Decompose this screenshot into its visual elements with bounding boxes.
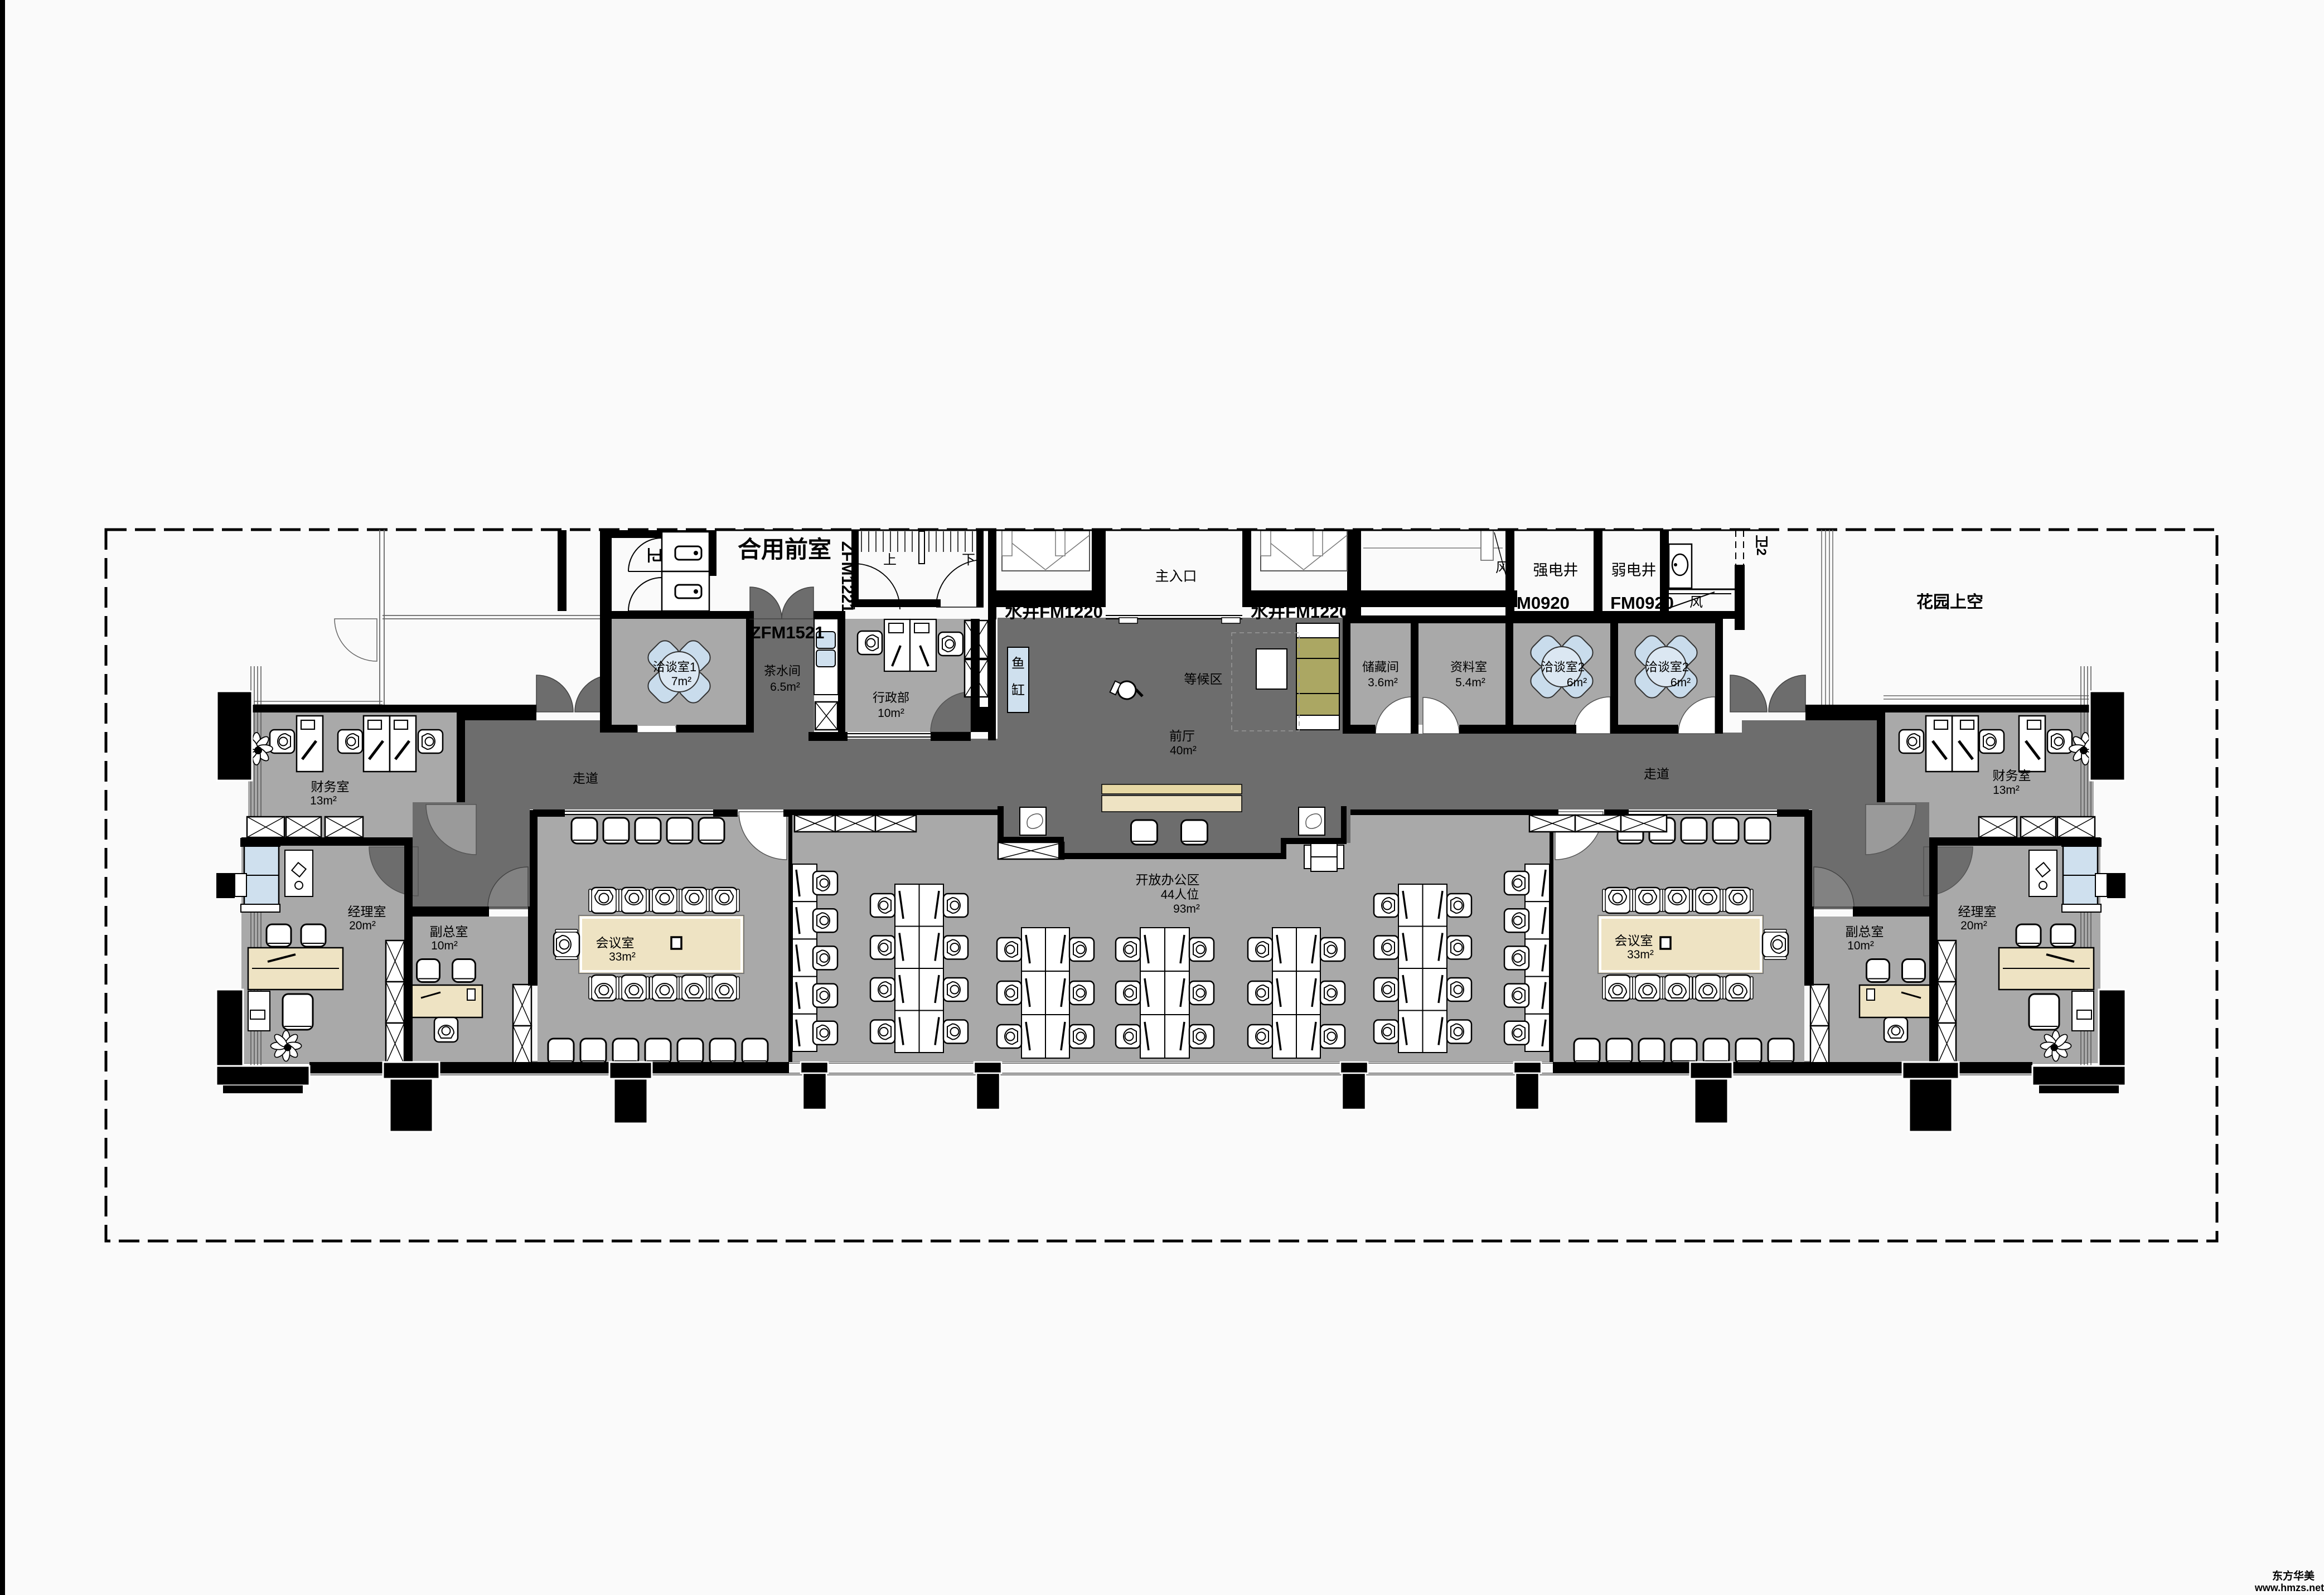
svg-text:风: 风 — [1689, 595, 1703, 610]
svg-text:FM0920: FM0920 — [1506, 593, 1570, 613]
svg-text:3.6m²: 3.6m² — [1368, 676, 1398, 689]
svg-text:洽谈室2: 洽谈室2 — [1541, 660, 1585, 674]
svg-text:前厅: 前厅 — [1169, 729, 1195, 743]
svg-text:20m²: 20m² — [1960, 919, 1987, 932]
svg-text:主入口: 主入口 — [1155, 569, 1197, 584]
svg-text:水井FM1220: 水井FM1220 — [1251, 602, 1349, 622]
svg-text:7m²: 7m² — [671, 675, 691, 688]
svg-text:ZFM1221: ZFM1221 — [838, 541, 856, 613]
svg-text:缸: 缸 — [1011, 683, 1025, 698]
svg-text:40m²: 40m² — [1170, 744, 1197, 757]
svg-text:财务室: 财务室 — [1993, 768, 2031, 783]
svg-text:副总室: 副总室 — [430, 924, 468, 939]
svg-text:鱼: 鱼 — [1011, 656, 1025, 671]
svg-text:合用前室: 合用前室 — [738, 536, 831, 563]
svg-text:资料室: 资料室 — [1450, 660, 1487, 674]
svg-text:13m²: 13m² — [1993, 784, 2020, 797]
svg-text:下: 下 — [962, 552, 975, 568]
svg-text:卫: 卫 — [646, 547, 663, 563]
svg-text:93m²: 93m² — [1173, 903, 1200, 915]
svg-text:44人位: 44人位 — [1161, 888, 1199, 901]
svg-text:6.5m²: 6.5m² — [770, 681, 800, 694]
svg-text:经理室: 经理室 — [1958, 904, 1997, 919]
svg-text:开放办公区: 开放办公区 — [1136, 872, 1200, 887]
svg-text:13m²: 13m² — [310, 794, 337, 807]
svg-text:弱电井: 弱电井 — [1611, 562, 1657, 579]
svg-text:20m²: 20m² — [349, 919, 376, 932]
svg-text:10m²: 10m² — [878, 707, 904, 720]
svg-text:储藏间: 储藏间 — [1362, 660, 1399, 674]
svg-text:会议室: 会议室 — [1615, 933, 1653, 948]
svg-text:风: 风 — [1495, 560, 1509, 575]
svg-text:东方华美: 东方华美 — [2272, 1569, 2315, 1582]
svg-text:行政部: 行政部 — [873, 691, 909, 705]
svg-text:ZFM1521: ZFM1521 — [751, 623, 825, 642]
svg-text:上: 上 — [883, 552, 897, 568]
svg-text:www.hmzs.net: www.hmzs.net — [2254, 1582, 2324, 1593]
svg-text:财务室: 财务室 — [311, 779, 350, 794]
svg-text:10m²: 10m² — [431, 939, 458, 952]
svg-text:33m²: 33m² — [1627, 948, 1654, 961]
svg-text:10m²: 10m² — [1847, 939, 1874, 952]
svg-text:走道: 走道 — [1644, 767, 1669, 781]
svg-text:花园上空: 花园上空 — [1916, 593, 1983, 612]
svg-text:强电井: 强电井 — [1533, 562, 1579, 579]
svg-text:等候区: 等候区 — [1184, 672, 1223, 686]
svg-text:水井FM1220: 水井FM1220 — [1005, 602, 1103, 622]
svg-text:33m²: 33m² — [609, 951, 636, 963]
svg-text:会议室: 会议室 — [596, 935, 635, 950]
svg-text:卫2: 卫2 — [1754, 535, 1769, 555]
svg-text:洽谈室1: 洽谈室1 — [653, 660, 696, 674]
svg-text:FM0920: FM0920 — [1610, 593, 1674, 613]
svg-text:经理室: 经理室 — [348, 904, 386, 919]
svg-text:副总室: 副总室 — [1846, 924, 1884, 939]
svg-text:洽谈室2: 洽谈室2 — [1645, 660, 1689, 674]
svg-text:走道: 走道 — [573, 771, 598, 786]
svg-text:6m²: 6m² — [1671, 676, 1691, 689]
svg-text:5.4m²: 5.4m² — [1455, 676, 1485, 689]
svg-text:茶水间: 茶水间 — [764, 664, 801, 678]
svg-text:6m²: 6m² — [1567, 676, 1587, 689]
